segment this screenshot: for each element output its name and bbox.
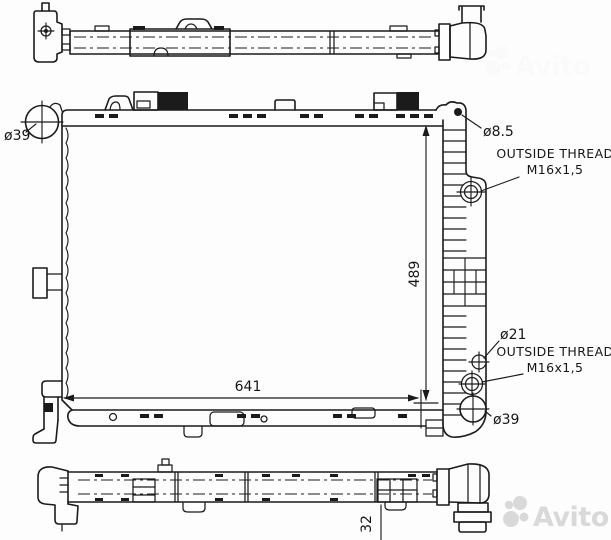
watermark-top-right-faint: Avito <box>485 45 591 82</box>
thread-upper-line2: M16x1,5 <box>527 162 584 177</box>
thread-lower-line2: M16x1,5 <box>527 360 584 375</box>
dim-height-label: 489 <box>407 261 423 288</box>
thread-boss-upper <box>457 178 485 206</box>
dimension-depth: 32 <box>359 505 381 540</box>
dimension-width: 641 <box>63 379 421 428</box>
bleed-hole-label: ø8.5 <box>483 124 514 140</box>
thread-upper-line1: OUTSIDE THREAD <box>496 146 611 161</box>
avito-logo-icon <box>503 496 529 527</box>
avito-logo-icon <box>485 45 511 76</box>
annotation-thread-upper: OUTSIDE THREAD M16x1,5 <box>481 146 611 191</box>
front-view: 641 489 ø39 ø8.5 OUTSIDE THREAD M16x1,5 … <box>4 92 611 443</box>
watermark-brand-text: Avito <box>515 51 591 82</box>
dimension-height: 489 <box>407 125 438 403</box>
thread-lower-line1: OUTSIDE THREAD <box>496 344 611 359</box>
watermark-brand-text: Avito <box>533 502 609 533</box>
annotation-bleed-hole: ø8.5 <box>462 115 514 140</box>
bottom-section-view: 32 <box>38 459 491 540</box>
dim-width-label: 641 <box>235 379 262 395</box>
watermark-bottom-right: Avito <box>503 496 609 533</box>
radiator-technical-drawing: 641 489 ø39 ø8.5 OUTSIDE THREAD M16x1,5 … <box>0 0 611 540</box>
annotation-outlet: ø39 <box>485 411 519 428</box>
bleed-hole-dot <box>454 108 462 116</box>
top-section-view <box>34 3 486 62</box>
bracket-bolt-icon <box>38 23 54 39</box>
right-tank <box>436 102 489 437</box>
bottom-left-mount <box>33 381 62 443</box>
dim-depth-label: 32 <box>359 515 375 533</box>
annotation-thread-lower: OUTSIDE THREAD M16x1,5 <box>482 344 611 382</box>
filler-neck-label: ø39 <box>4 128 30 144</box>
outlet-label: ø39 <box>493 412 519 428</box>
sensor-port-label: ø21 <box>500 327 526 343</box>
top-strip-slots <box>95 114 433 118</box>
